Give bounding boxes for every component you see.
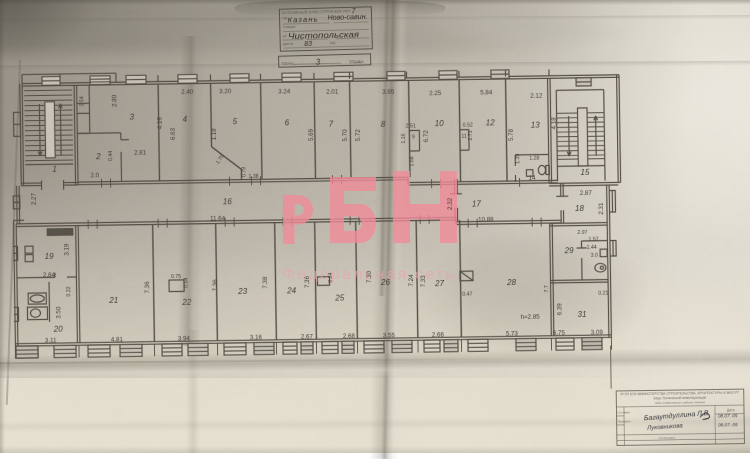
svg-text:27: 27 bbox=[434, 279, 445, 288]
svg-text:2.40: 2.40 bbox=[181, 89, 194, 96]
svg-text:2.81: 2.81 bbox=[134, 149, 147, 156]
svg-text:h=2.85: h=2.85 bbox=[521, 314, 541, 321]
svg-text:6.75: 6.75 bbox=[553, 330, 566, 337]
svg-text:5.84: 5.84 bbox=[480, 89, 493, 96]
svg-text:0.79: 0.79 bbox=[241, 167, 247, 177]
svg-text:18: 18 bbox=[575, 204, 585, 213]
svg-text:1.18: 1.18 bbox=[211, 128, 218, 141]
svg-text:2.31: 2.31 bbox=[598, 202, 605, 215]
svg-text:2.84: 2.84 bbox=[43, 272, 56, 279]
svg-text:ЭТАЖА: ЭТАЖА bbox=[349, 59, 364, 64]
svg-text:1.57: 1.57 bbox=[588, 237, 598, 243]
svg-text:2.67: 2.67 bbox=[301, 333, 314, 340]
svg-text:2: 2 bbox=[95, 152, 101, 161]
svg-text:ПЛАН: ПЛАН bbox=[282, 61, 294, 66]
svg-text:3.24: 3.24 bbox=[278, 88, 291, 95]
svg-text:25: 25 bbox=[334, 293, 345, 302]
svg-text:1.28: 1.28 bbox=[529, 156, 539, 162]
svg-text:11.64: 11.64 bbox=[210, 215, 226, 222]
svg-text:Чистопольская: Чистопольская bbox=[288, 30, 360, 41]
svg-text:3.0: 3.0 bbox=[591, 253, 598, 259]
svg-text:5.72: 5.72 bbox=[355, 129, 362, 142]
svg-text:ул.: ул. bbox=[283, 34, 287, 38]
svg-text:3.20: 3.20 bbox=[219, 88, 232, 95]
svg-text:7.36: 7.36 bbox=[304, 275, 311, 288]
svg-text:7.36: 7.36 bbox=[144, 281, 151, 294]
svg-text:3.95: 3.95 bbox=[382, 89, 395, 96]
svg-text:Согласовано: Согласовано bbox=[658, 436, 675, 440]
svg-text:5.69: 5.69 bbox=[308, 128, 315, 141]
svg-text:0.52: 0.52 bbox=[463, 123, 473, 129]
svg-text:17: 17 bbox=[472, 199, 482, 208]
svg-text:6.39: 6.39 bbox=[556, 303, 563, 316]
svg-text:8: 8 bbox=[381, 120, 386, 129]
svg-text:1: 1 bbox=[52, 165, 57, 174]
svg-text:2.32: 2.32 bbox=[447, 197, 454, 210]
svg-text:2.54: 2.54 bbox=[79, 96, 85, 106]
svg-text:7.38: 7.38 bbox=[262, 276, 269, 289]
svg-text:5: 5 bbox=[233, 117, 238, 126]
svg-text:14: 14 bbox=[528, 175, 536, 182]
svg-text:7.24: 7.24 bbox=[408, 274, 415, 287]
svg-text:3.50: 3.50 bbox=[55, 306, 62, 319]
svg-text:5.78: 5.78 bbox=[508, 128, 515, 141]
svg-text:7: 7 bbox=[329, 120, 334, 129]
svg-text:22: 22 bbox=[181, 298, 192, 307]
svg-text:0.75: 0.75 bbox=[171, 274, 181, 280]
svg-text:6.63: 6.63 bbox=[170, 127, 177, 140]
svg-text:1.16: 1.16 bbox=[401, 133, 407, 143]
svg-text:2.01: 2.01 bbox=[326, 89, 339, 96]
svg-text:6: 6 bbox=[285, 118, 290, 127]
svg-text:0.21: 0.21 bbox=[598, 291, 608, 297]
svg-text:26: 26 bbox=[380, 278, 391, 287]
svg-text:13: 13 bbox=[531, 121, 541, 130]
svg-text:дом №: дом № bbox=[283, 42, 294, 46]
svg-text:0.22: 0.22 bbox=[66, 286, 72, 296]
svg-text:4.81: 4.81 bbox=[111, 336, 124, 343]
svg-text:5.73: 5.73 bbox=[506, 330, 519, 337]
svg-text:3.55: 3.55 bbox=[383, 332, 396, 339]
svg-text:4: 4 bbox=[183, 115, 188, 124]
svg-text:1.44: 1.44 bbox=[587, 245, 597, 251]
svg-text:7.36: 7.36 bbox=[212, 279, 219, 292]
svg-text:5.70: 5.70 bbox=[342, 129, 349, 142]
svg-text:2.0: 2.0 bbox=[90, 172, 99, 179]
svg-text:Дата: Дата bbox=[727, 408, 735, 412]
svg-text:28: 28 bbox=[506, 278, 517, 287]
svg-text:3: 3 bbox=[316, 58, 321, 67]
svg-text:31: 31 bbox=[577, 310, 586, 319]
svg-text:23: 23 bbox=[237, 287, 248, 296]
svg-text:2.87: 2.87 bbox=[580, 190, 593, 197]
svg-text:Станция: Станция bbox=[283, 25, 296, 29]
svg-text:Ново-Савиновского района г.Каз: Ново-Савиновского района г.Казани bbox=[655, 400, 706, 405]
svg-text:4.18: 4.18 bbox=[551, 117, 558, 130]
svg-text:3.11: 3.11 bbox=[45, 337, 57, 344]
svg-text:15: 15 bbox=[580, 168, 590, 177]
svg-text:3.16: 3.16 bbox=[250, 334, 263, 341]
svg-text:1.68: 1.68 bbox=[409, 156, 415, 166]
svg-text:3.09: 3.09 bbox=[591, 329, 604, 336]
svg-text:2.97: 2.97 bbox=[577, 230, 587, 236]
svg-text:Проверил: Проверил bbox=[618, 419, 631, 423]
svg-text:21: 21 bbox=[108, 296, 118, 305]
svg-text:0.54: 0.54 bbox=[183, 278, 189, 288]
svg-text:кор.: кор. bbox=[330, 41, 336, 45]
svg-text:4.19: 4.19 bbox=[157, 117, 164, 130]
svg-text:08.07.-05: 08.07.-05 bbox=[718, 422, 738, 427]
svg-text:08.07.-05: 08.07.-05 bbox=[718, 413, 738, 418]
svg-text:3: 3 bbox=[130, 113, 135, 122]
svg-text:2.80: 2.80 bbox=[111, 94, 118, 107]
svg-text:11: 11 bbox=[461, 134, 467, 140]
svg-text:2.71: 2.71 bbox=[468, 130, 474, 140]
svg-text:9: 9 bbox=[412, 134, 415, 140]
svg-text:10: 10 bbox=[435, 119, 445, 128]
svg-text:0.47: 0.47 bbox=[462, 292, 472, 298]
svg-text:10.88: 10.88 bbox=[478, 216, 494, 223]
svg-text:Составил: Составил bbox=[617, 410, 630, 414]
svg-text:2.25: 2.25 bbox=[429, 90, 442, 97]
svg-text:2.12: 2.12 bbox=[530, 93, 543, 100]
svg-text:2.51: 2.51 bbox=[406, 123, 416, 129]
svg-text:2.27: 2.27 bbox=[31, 192, 38, 205]
svg-text:3.19: 3.19 bbox=[63, 243, 70, 256]
svg-text:2.66: 2.66 bbox=[432, 332, 445, 339]
svg-text:20: 20 bbox=[53, 325, 64, 334]
svg-text:29: 29 bbox=[564, 246, 575, 255]
svg-text:16: 16 bbox=[223, 197, 233, 206]
svg-text:7.7: 7.7 bbox=[544, 285, 550, 292]
svg-text:7.30: 7.30 bbox=[366, 270, 373, 283]
svg-text:24: 24 bbox=[286, 286, 297, 295]
svg-text:0.44: 0.44 bbox=[108, 151, 114, 161]
svg-text:1.38: 1.38 bbox=[248, 174, 258, 180]
svg-text:3.94: 3.94 bbox=[178, 335, 191, 342]
svg-text:7.33: 7.33 bbox=[420, 275, 427, 288]
svg-text:19: 19 bbox=[45, 252, 55, 261]
svg-text:12: 12 bbox=[486, 118, 496, 127]
svg-text:Ново-савин.: Ново-савин. bbox=[327, 14, 367, 22]
svg-text:83: 83 bbox=[304, 41, 312, 48]
svg-text:2.68: 2.68 bbox=[343, 333, 356, 340]
svg-text:6.72: 6.72 bbox=[423, 130, 430, 143]
svg-text:1.39: 1.39 bbox=[515, 154, 521, 164]
